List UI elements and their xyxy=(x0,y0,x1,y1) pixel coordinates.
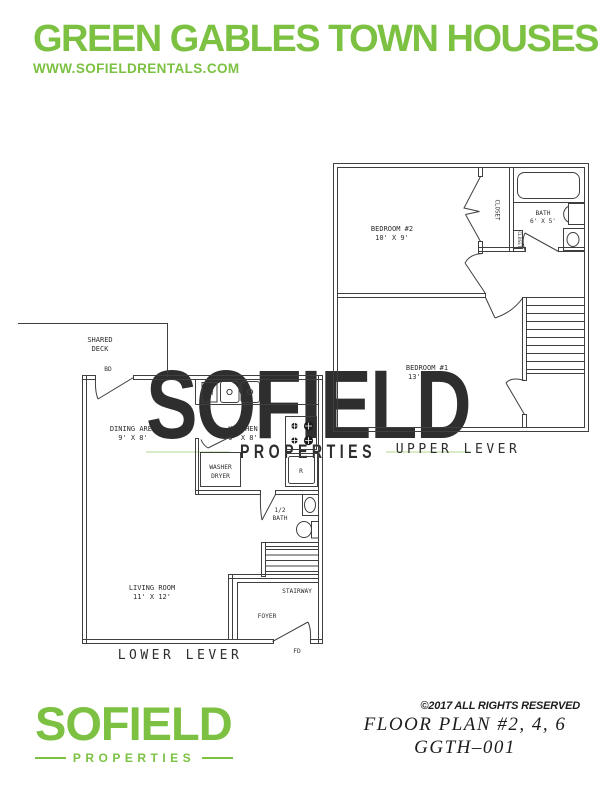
label-kitchen-dims: 9' X 8' xyxy=(228,434,258,442)
footer-logo-tagline: PROPERTIES xyxy=(73,751,195,765)
bathtub xyxy=(518,173,580,199)
label-dishwasher: DW xyxy=(206,390,214,397)
deck-door xyxy=(95,378,133,400)
sink-basin xyxy=(567,233,579,247)
website-url: WWW.SOFIELDRENTALS.COM xyxy=(33,61,598,76)
label-closet-small: CLOSET xyxy=(516,231,522,248)
upper-plan-doors xyxy=(465,233,559,415)
label-shared-deck-1: SHARED xyxy=(87,336,112,344)
label-bedroom1-dims: 13' X 11' xyxy=(408,373,446,381)
label-kitchen-name: KITCHEN xyxy=(228,425,258,433)
label-half-bath-1: 1/2 xyxy=(274,507,285,514)
page-title: GREEN GABLES TOWN HOUSES xyxy=(33,20,598,58)
label-dining-dims: 9' X 8' xyxy=(118,434,148,442)
label-living-name: LIVING ROOM xyxy=(129,584,175,592)
label-foyer: FOYER xyxy=(258,613,277,620)
toilet-tank xyxy=(569,204,585,225)
label-bedroom1-name: BEDROOM #1 xyxy=(406,364,448,372)
upper-plan-labels: BEDROOM #2 10' X 9' CLOSET BATH 6' X 5' … xyxy=(371,200,556,457)
label-half-bath-2: BATH xyxy=(273,515,288,522)
lower-floor-plan: SHARED DECK BD DW DINING AREA 9' X 8' KI… xyxy=(14,318,326,668)
footer-logo-rule-right xyxy=(202,757,233,759)
floor-plan-code: GGTH–001 xyxy=(350,737,580,759)
label-washer: WASHER xyxy=(209,464,232,471)
label-bedroom2-name: BEDROOM #2 xyxy=(371,225,413,233)
sink-basin-right xyxy=(241,382,260,403)
label-front-door: FD xyxy=(293,648,301,655)
copyright-text: ©2017 ALL RIGHTS RESERVED xyxy=(350,700,580,712)
label-dryer: DRYER xyxy=(211,473,230,480)
upper-plan-walls xyxy=(334,164,589,432)
upper-floor-plan: BEDROOM #2 10' X 9' CLOSET BATH 6' X 5' … xyxy=(333,163,589,463)
label-bedroom2-dims: 10' X 9' xyxy=(375,234,409,242)
front-door xyxy=(273,622,311,642)
footer-logo-name: SOFIELD xyxy=(35,700,233,747)
label-bath-dims: 6' X 5' xyxy=(530,218,556,225)
half-bath-toilet-tank xyxy=(312,522,319,539)
footer-logo: SOFIELD PROPERTIES xyxy=(35,700,233,765)
label-living-dims: 11' X 12' xyxy=(133,593,171,601)
floor-plan-title: FLOOR PLAN #2, 4, 6 xyxy=(350,714,580,736)
header: GREEN GABLES TOWN HOUSES WWW.SOFIELDRENT… xyxy=(33,20,598,76)
label-deck-door: BD xyxy=(104,366,112,373)
upper-plan-title: UPPER LEVER xyxy=(396,442,521,457)
label-refrigerator: R xyxy=(299,468,303,475)
label-stairway: STAIRWAY xyxy=(282,588,312,595)
footer-plan-info: ©2017 ALL RIGHTS RESERVED FLOOR PLAN #2,… xyxy=(350,700,580,759)
label-bath-name: BATH xyxy=(536,210,551,217)
label-closet: CLOSET xyxy=(494,200,500,221)
lower-plan-title: LOWER LEVER xyxy=(118,648,243,663)
sink-basin-left xyxy=(221,382,240,403)
label-shared-deck-2: DECK xyxy=(92,345,110,353)
footer-logo-rule-left xyxy=(35,757,66,759)
label-dining-name: DINING AREA xyxy=(110,425,157,433)
half-bath-toilet-bowl xyxy=(297,522,312,538)
stove xyxy=(286,417,317,450)
flyer-page: { "header": { "title": "GREEN GABLES TOW… xyxy=(0,0,612,785)
half-bath-sink-basin xyxy=(305,498,316,513)
